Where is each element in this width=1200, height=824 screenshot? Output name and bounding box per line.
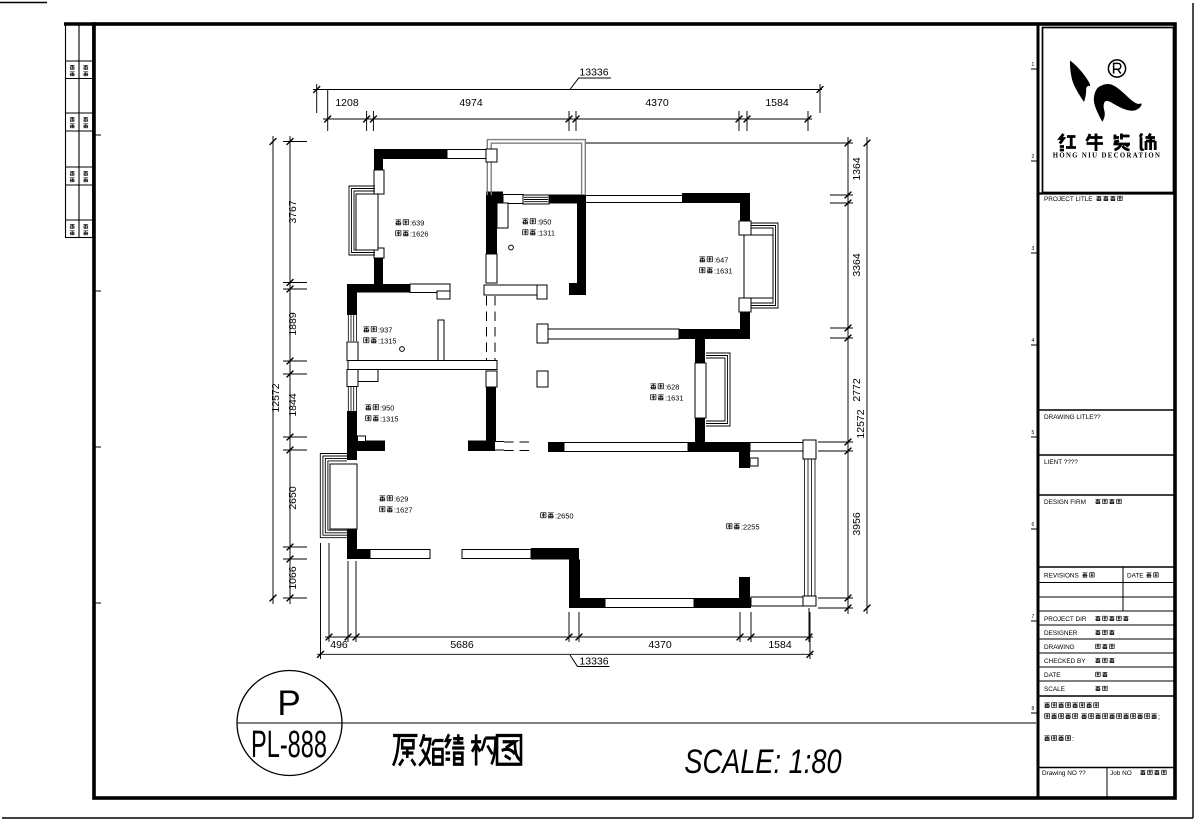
svg-text:Drawing NO ??: Drawing NO ?? — [1042, 770, 1086, 777]
svg-text:12572: 12572 — [270, 383, 282, 412]
svg-text:4: 4 — [1032, 338, 1035, 344]
svg-text:13336: 13336 — [579, 656, 608, 668]
svg-text:P: P — [277, 684, 300, 723]
svg-text:1066: 1066 — [287, 566, 299, 590]
svg-text::1627: :1627 — [394, 506, 413, 515]
svg-text:1844: 1844 — [287, 393, 299, 417]
svg-text:DRAWING: DRAWING — [1044, 644, 1075, 651]
svg-text:1584: 1584 — [765, 97, 789, 109]
svg-text:3364: 3364 — [851, 253, 863, 277]
svg-text:2: 2 — [1032, 154, 1035, 160]
svg-text:496: 496 — [330, 639, 348, 651]
svg-text::628: :628 — [665, 383, 679, 392]
svg-text:DRAWING LITLE??: DRAWING LITLE?? — [1044, 414, 1101, 421]
svg-text::1315: :1315 — [380, 415, 399, 424]
svg-text:3956: 3956 — [851, 512, 863, 536]
svg-text:12572: 12572 — [855, 409, 867, 438]
svg-text:2772: 2772 — [851, 378, 863, 402]
svg-text::1311: :1311 — [537, 229, 555, 238]
svg-text:1208: 1208 — [335, 97, 359, 109]
svg-text:1: 1 — [1032, 62, 1035, 68]
svg-text::629: :629 — [394, 495, 408, 504]
svg-text:4370: 4370 — [645, 97, 669, 109]
svg-text:;: ; — [1158, 714, 1160, 721]
svg-text:DATE: DATE — [1044, 672, 1061, 679]
svg-text:LIENT ????: LIENT ???? — [1044, 459, 1078, 466]
svg-text:1364: 1364 — [851, 157, 863, 181]
svg-text::1315: :1315 — [378, 337, 397, 346]
svg-text:SCALE: 1:80: SCALE: 1:80 — [684, 742, 841, 781]
svg-text:4370: 4370 — [648, 639, 672, 651]
svg-text:DESIGN FIRM: DESIGN FIRM — [1044, 499, 1086, 506]
svg-text:CHECKED BY: CHECKED BY — [1044, 658, 1086, 665]
svg-text:1584: 1584 — [768, 639, 792, 651]
svg-text::: : — [1072, 736, 1074, 743]
svg-text:PROJECT DIR: PROJECT DIR — [1044, 616, 1087, 623]
svg-text:1889: 1889 — [287, 312, 299, 336]
svg-text::937: :937 — [378, 326, 392, 335]
svg-text:3767: 3767 — [287, 200, 299, 224]
svg-text::1626: :1626 — [410, 230, 429, 239]
svg-text::639: :639 — [410, 219, 424, 228]
svg-text:DESIGNER: DESIGNER — [1044, 630, 1078, 637]
svg-text::647: :647 — [714, 256, 728, 265]
svg-text::2255: :2255 — [741, 523, 760, 532]
svg-text:PL-888: PL-888 — [251, 722, 327, 765]
svg-text::2650: :2650 — [555, 512, 574, 521]
svg-text:2650: 2650 — [287, 486, 299, 510]
svg-text:4974: 4974 — [459, 97, 483, 109]
svg-text:REVISIONS: REVISIONS — [1044, 573, 1079, 580]
svg-text:Job NO: Job NO — [1110, 770, 1132, 777]
svg-text:8: 8 — [1032, 706, 1035, 712]
svg-text:SCALE: SCALE — [1044, 686, 1065, 693]
svg-text:5: 5 — [1032, 430, 1035, 436]
svg-text:HONG NIU DECORATION: HONG NIU DECORATION — [1053, 153, 1162, 160]
svg-text:13336: 13336 — [579, 67, 608, 79]
svg-text:7: 7 — [1032, 614, 1035, 620]
svg-text:DATE: DATE — [1127, 573, 1144, 580]
svg-text:5686: 5686 — [450, 639, 474, 651]
svg-text::1631: :1631 — [665, 394, 684, 403]
svg-text:PROJECT LITLE: PROJECT LITLE — [1044, 196, 1093, 203]
svg-text:3: 3 — [1032, 246, 1035, 252]
svg-text::950: :950 — [380, 404, 394, 413]
svg-text::1631: :1631 — [714, 267, 733, 276]
svg-text::950: :950 — [537, 218, 551, 227]
svg-text:6: 6 — [1032, 522, 1035, 528]
